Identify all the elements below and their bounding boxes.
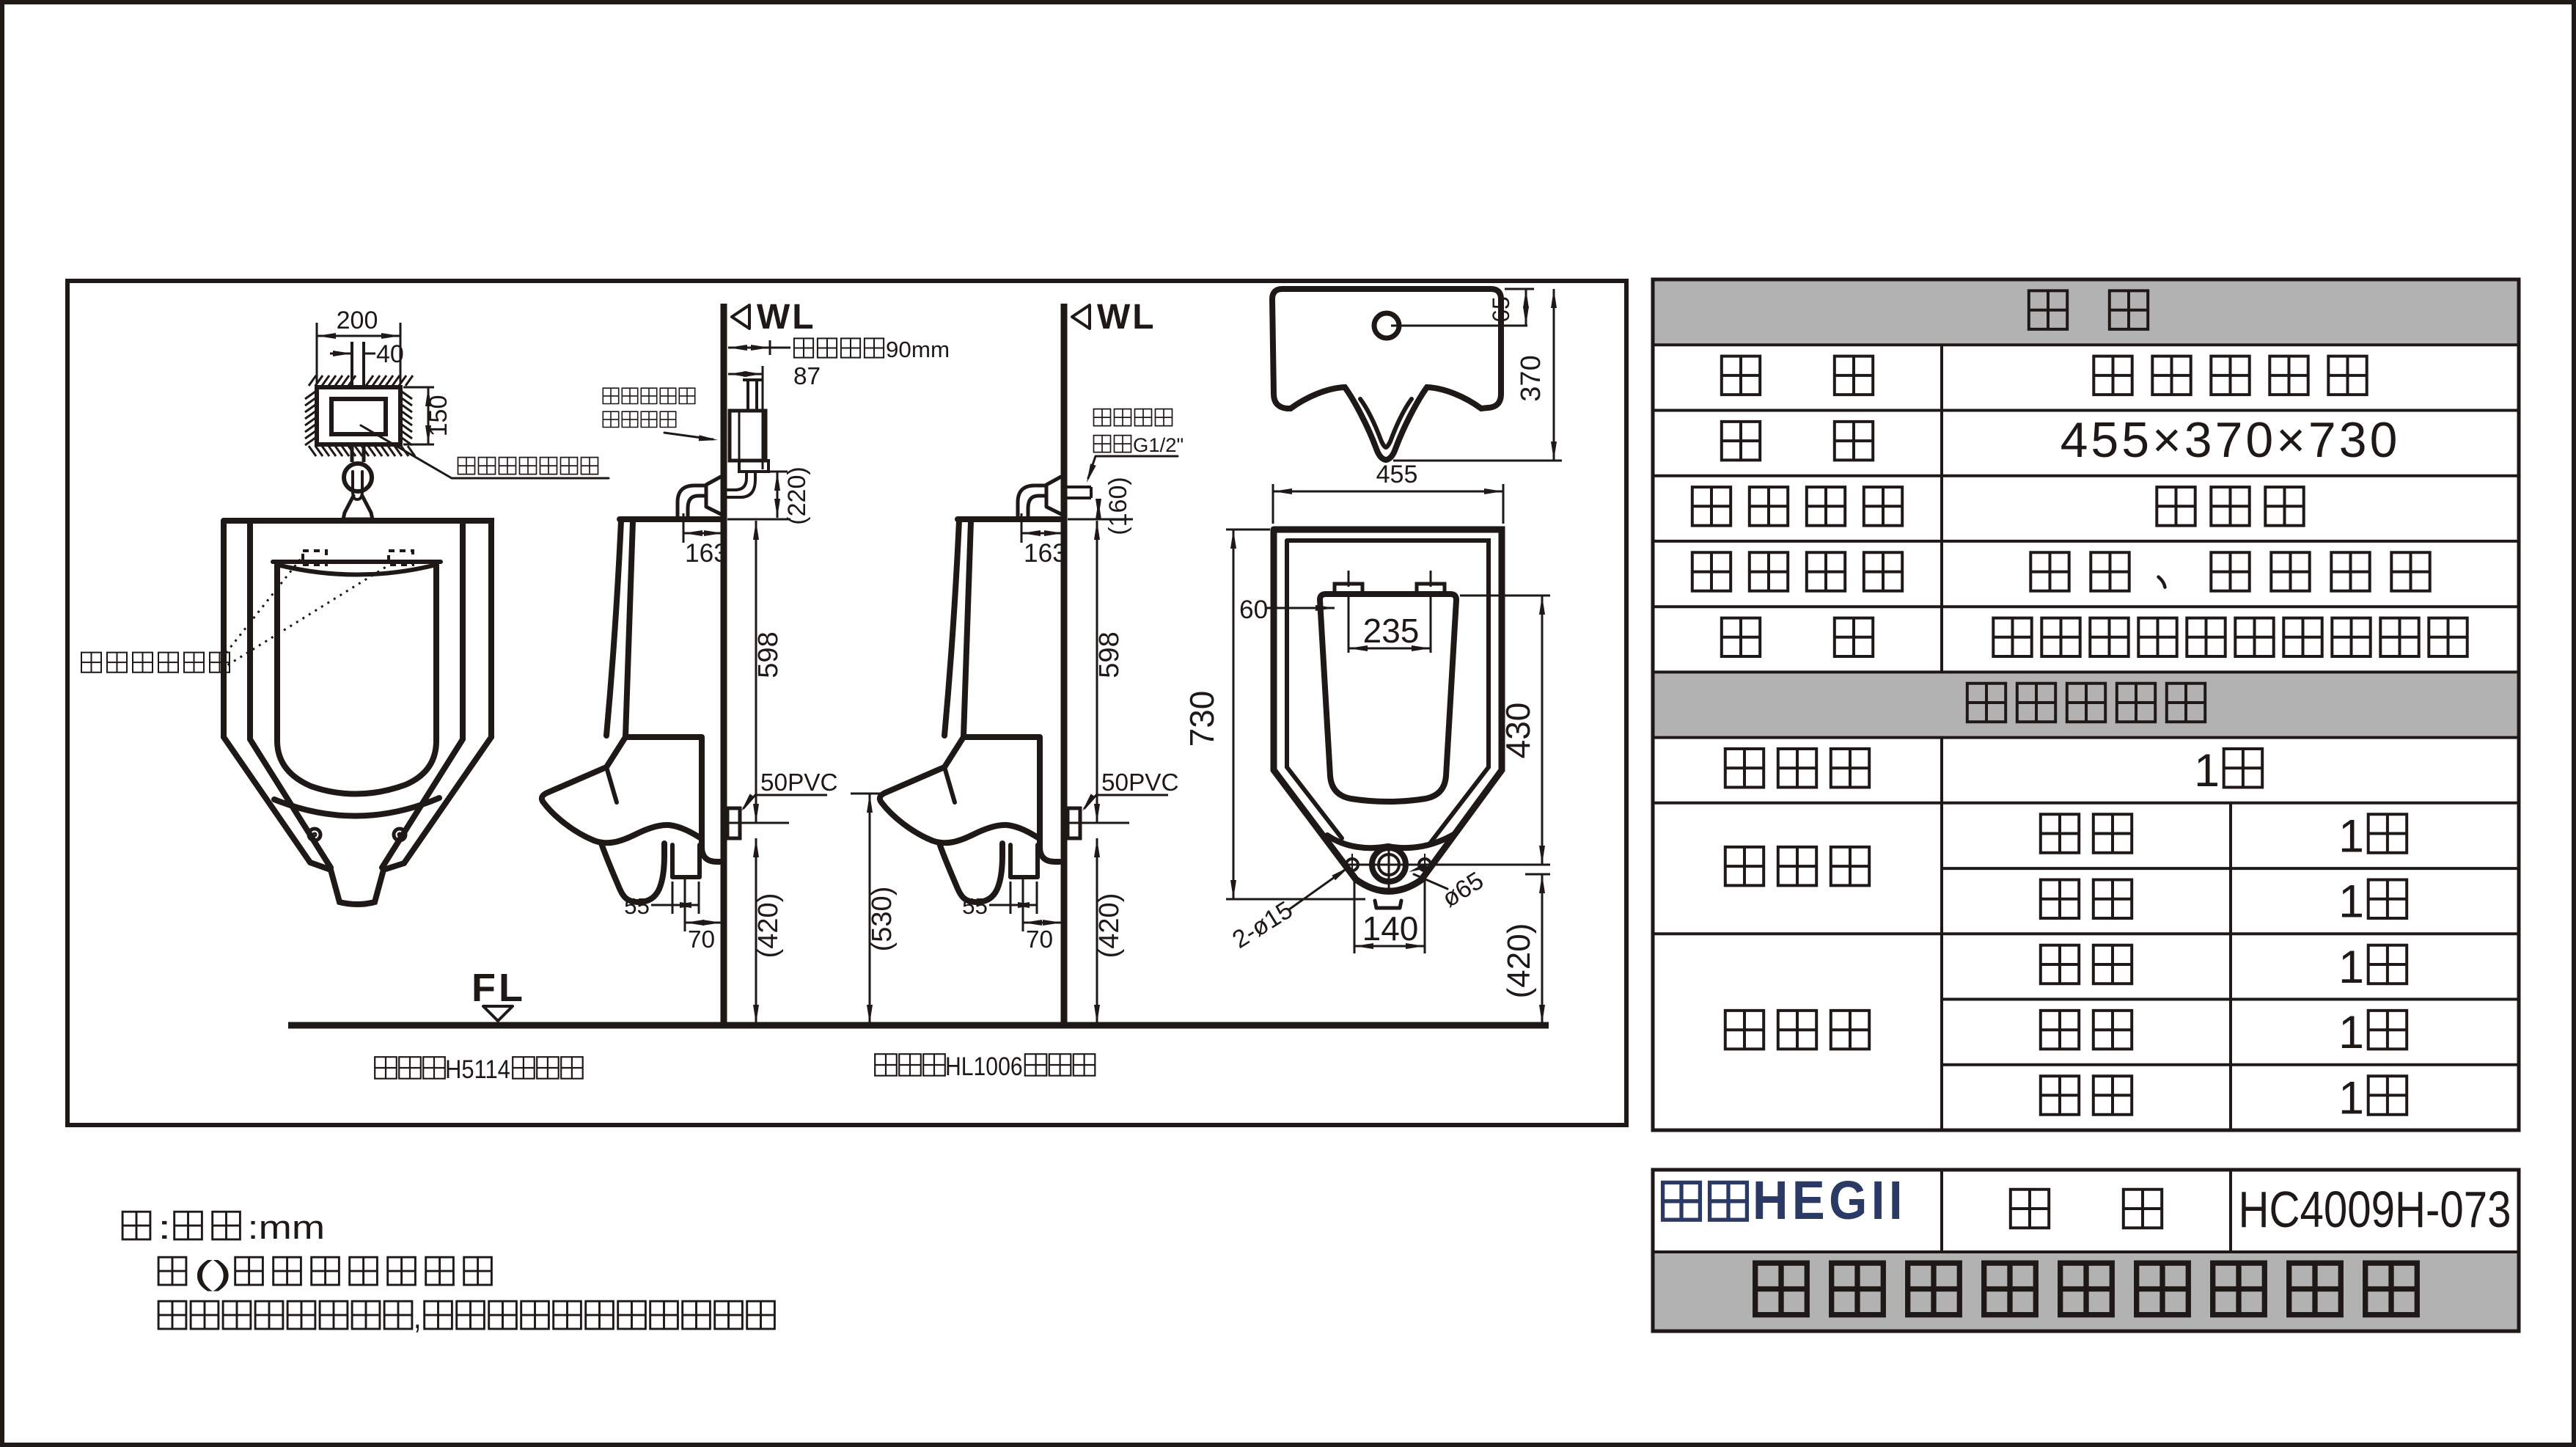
- svg-text:FL: FL: [471, 966, 526, 1010]
- svg-text:,: ,: [414, 1298, 422, 1336]
- svg-text:70: 70: [688, 926, 715, 953]
- svg-text:730: 730: [1183, 691, 1221, 747]
- svg-text:370: 370: [1516, 355, 1546, 401]
- svg-text:140: 140: [1362, 909, 1419, 948]
- svg-text:70: 70: [1026, 926, 1053, 953]
- svg-text:WL: WL: [757, 298, 816, 337]
- svg-text:163: 163: [685, 539, 728, 568]
- svg-text:HL1006: HL1006: [945, 1052, 1023, 1081]
- svg-text:150: 150: [425, 395, 452, 437]
- svg-text:(420): (420): [1094, 893, 1125, 959]
- svg-text:50PVC: 50PVC: [760, 769, 838, 796]
- svg-text:WL: WL: [1097, 298, 1156, 337]
- svg-text:65: 65: [1488, 296, 1514, 323]
- svg-text:50PVC: 50PVC: [1101, 769, 1179, 796]
- svg-text::mm: :mm: [248, 1209, 326, 1246]
- svg-text:1: 1: [2338, 811, 2364, 862]
- svg-text:(420): (420): [753, 893, 784, 959]
- svg-text:60: 60: [1239, 596, 1268, 624]
- svg-text:(420): (420): [1501, 923, 1537, 999]
- svg-text:90mm: 90mm: [886, 337, 950, 362]
- svg-text:1: 1: [2338, 876, 2364, 928]
- svg-text:1: 1: [2194, 745, 2220, 796]
- svg-text:(530): (530): [867, 887, 898, 952]
- svg-text:1: 1: [2338, 1072, 2364, 1124]
- svg-text::: :: [158, 1209, 172, 1246]
- svg-text:430: 430: [1499, 703, 1537, 759]
- svg-text:455: 455: [1376, 461, 1418, 488]
- svg-text:(): (): [194, 1254, 232, 1292]
- svg-text:G1/2": G1/2": [1133, 434, 1184, 456]
- svg-text:55: 55: [962, 893, 988, 919]
- svg-text:1: 1: [2338, 1007, 2364, 1058]
- svg-text:1: 1: [2338, 942, 2364, 993]
- svg-text:598: 598: [1094, 631, 1125, 678]
- svg-text:200: 200: [337, 307, 378, 334]
- svg-text:455×370×730: 455×370×730: [2061, 412, 2401, 468]
- svg-text:598: 598: [753, 631, 784, 678]
- svg-text:HC4009H-073: HC4009H-073: [2239, 1181, 2511, 1238]
- svg-text:H5114: H5114: [445, 1055, 510, 1084]
- svg-text:235: 235: [1363, 612, 1420, 650]
- svg-text:87: 87: [793, 362, 821, 389]
- svg-text:(220): (220): [783, 466, 811, 524]
- svg-text:163: 163: [1024, 539, 1067, 568]
- svg-text:(160): (160): [1104, 477, 1132, 535]
- svg-text:40: 40: [376, 340, 404, 368]
- svg-text:HEGII: HEGII: [1753, 1170, 1907, 1231]
